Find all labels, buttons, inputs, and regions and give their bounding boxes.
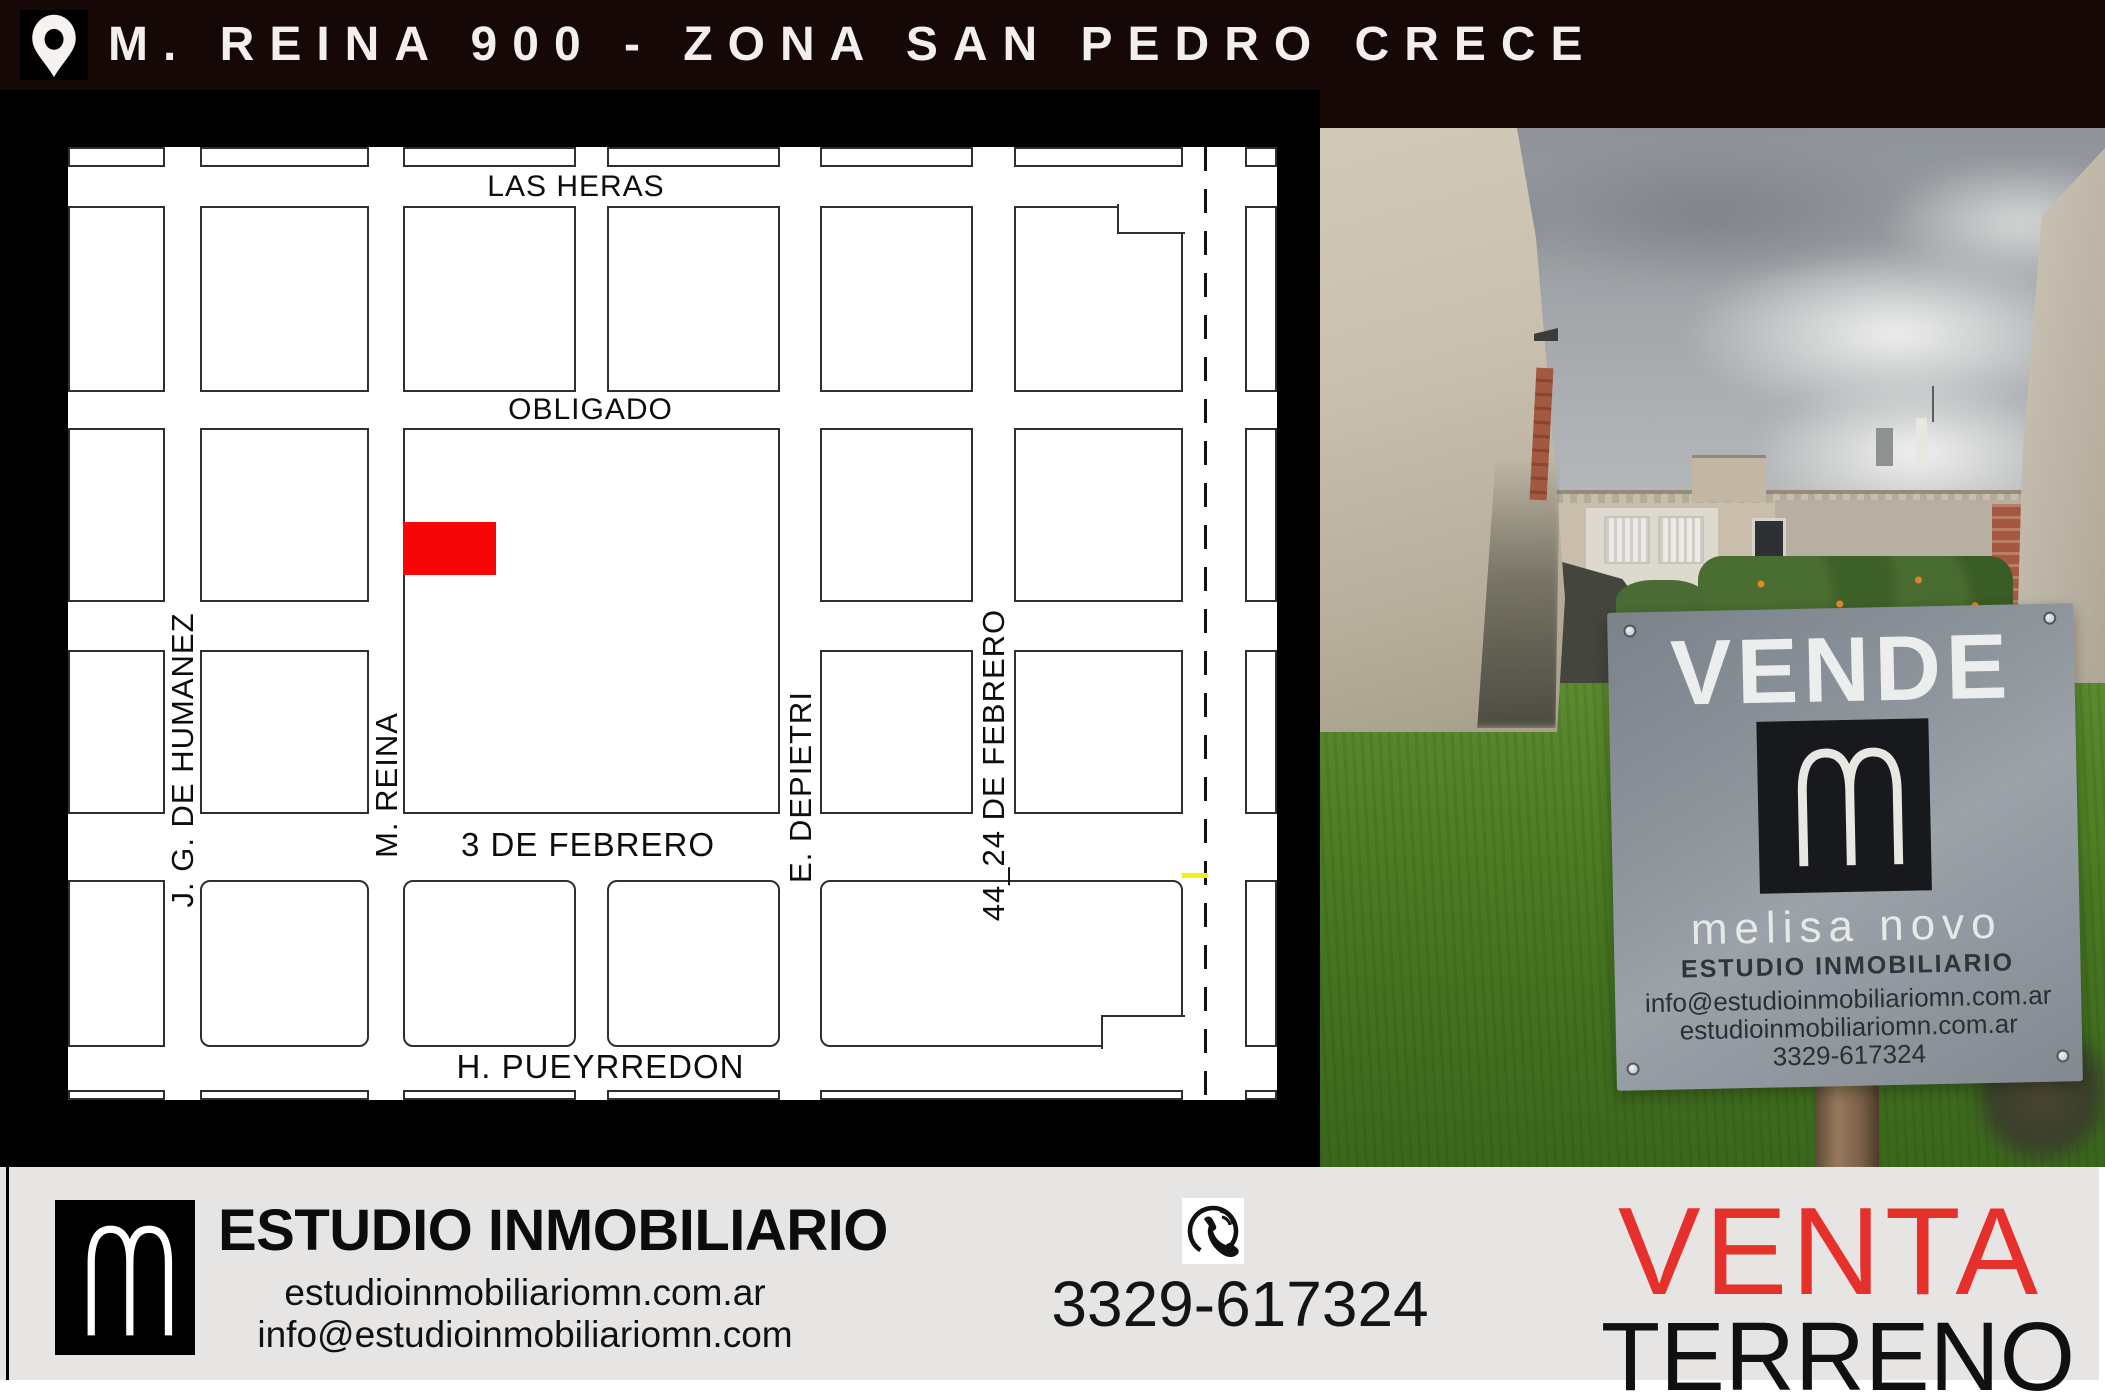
city-block — [1014, 147, 1183, 167]
city-block — [68, 428, 165, 602]
sign-headline: VENDE — [1608, 627, 2075, 713]
window-shutter — [1658, 516, 1704, 564]
street-label-obligado: OBLIGADO — [418, 393, 763, 427]
window-shutter — [1604, 516, 1650, 564]
city-block — [403, 147, 576, 167]
city-block — [1245, 880, 1277, 1047]
property-type: TERRENO — [1588, 1301, 2088, 1398]
city-block — [1245, 1090, 1277, 1100]
avenue-dashed-centerline — [1204, 147, 1207, 1100]
property-lot-marker — [403, 522, 496, 575]
phone-icon — [1182, 1198, 1244, 1264]
block-notch — [1117, 204, 1185, 234]
city-block — [1245, 206, 1277, 392]
city-block — [607, 1090, 780, 1100]
city-block — [200, 428, 369, 602]
screw — [2043, 612, 2056, 625]
city-block — [820, 147, 973, 167]
block-notch — [1101, 1015, 1185, 1049]
city-block — [403, 428, 780, 814]
city-block — [68, 650, 165, 814]
for-sale-sign: VENDE melisa novo ESTUDIO INMOBILIARIO i… — [1607, 603, 2083, 1091]
phone-number: 3329-617324 — [940, 1267, 1540, 1341]
chimney — [1916, 418, 1927, 464]
city-block — [403, 1090, 576, 1100]
banner-edge-line — [6, 1167, 9, 1380]
chimney — [1876, 428, 1893, 466]
city-block — [200, 880, 369, 1047]
city-block — [68, 880, 165, 1047]
city-block — [68, 147, 165, 167]
city-block — [820, 206, 973, 392]
city-block — [1245, 428, 1277, 602]
city-block — [200, 650, 369, 814]
location-pin-icon — [20, 10, 88, 80]
parapet — [1692, 455, 1766, 502]
city-block — [820, 650, 973, 814]
listing-flyer: M. REINA 900 - ZONA SAN PEDRO CRECE LAS … — [0, 0, 2105, 1398]
city-block — [68, 206, 165, 392]
city-block — [607, 206, 780, 392]
city-block — [1245, 147, 1277, 167]
company-name: ESTUDIO INMOBILIARIO — [218, 1197, 888, 1264]
city-block — [200, 147, 369, 167]
company-website: estudioinmobiliariomn.com.ar — [120, 1272, 930, 1314]
street-map: LAS HERAS OBLIGADO 3 DE FEBRERO H. PUEYR… — [68, 147, 1277, 1100]
city-block — [200, 1090, 369, 1100]
city-block — [200, 206, 369, 392]
city-block — [1014, 650, 1183, 814]
city-block — [403, 880, 576, 1047]
yellow-road-mark — [1182, 873, 1208, 878]
city-block — [403, 206, 576, 392]
street-label-44-24-de-febrero: 44_24 DE FEBRERO — [976, 530, 1010, 1000]
street-label-las-heras: LAS HERAS — [406, 170, 746, 204]
city-block — [1245, 650, 1277, 814]
page-title: M. REINA 900 - ZONA SAN PEDRO CRECE — [108, 0, 1598, 90]
street-label-h-pueyrredon: H. PUEYRREDON — [408, 1048, 793, 1086]
city-block — [607, 880, 780, 1047]
street-label-m-reina: M. REINA — [369, 655, 403, 915]
city-block — [607, 147, 780, 167]
bottom-banner: ESTUDIO INMOBILIARIO estudioinmobiliario… — [0, 1167, 2105, 1398]
property-photo: VENDE melisa novo ESTUDIO INMOBILIARIO i… — [1320, 128, 2105, 1167]
street-label-3-de-febrero: 3 DE FEBRERO — [393, 826, 783, 864]
banner-background: ESTUDIO INMOBILIARIO estudioinmobiliario… — [0, 1167, 2099, 1380]
company-email: info@estudioinmobiliariomn.com — [120, 1314, 930, 1356]
city-block — [1014, 428, 1183, 602]
street-label-e-depietri: E. DEPIETRI — [783, 637, 817, 937]
city-block — [820, 1090, 1183, 1100]
antenna — [1932, 386, 1934, 422]
brand-logo — [1756, 718, 1932, 894]
map-panel: LAS HERAS OBLIGADO 3 DE FEBRERO H. PUEYR… — [0, 90, 1320, 1167]
city-block — [68, 1090, 165, 1100]
street-label-jg-de-humanez: J. G. DE HUMANEZ — [165, 550, 199, 970]
city-block — [820, 428, 973, 602]
